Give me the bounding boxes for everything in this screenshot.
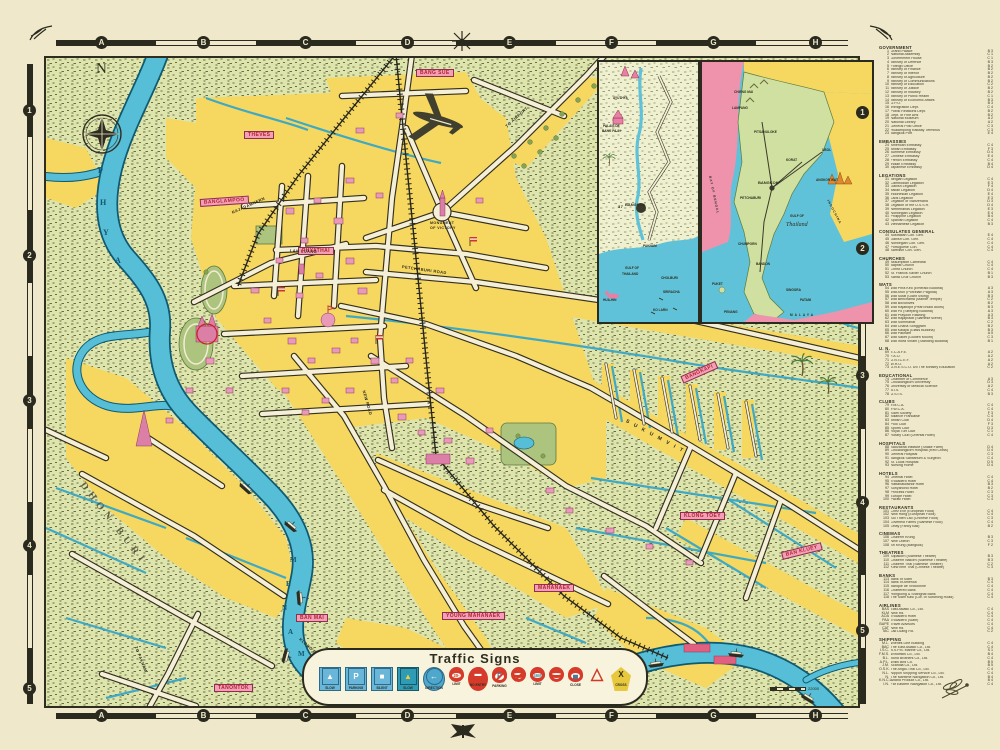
legend-index: GOVERNMENT 1 Grand Palace B 3 2 National… <box>879 42 993 687</box>
inset-route-map: AYUTHYAPALAIS DEBANG PA-INBANGKOKPAKNAMG… <box>597 60 700 324</box>
legend-entry-number: 87 <box>879 434 889 438</box>
traffic-sign: ▲ SLOW <box>319 667 341 691</box>
inset-label: UBOL <box>822 148 831 152</box>
legend-section: CLUBS 79 Y.M.C.A. C 4 80 Y.W.C.A. C 4 <box>879 399 993 438</box>
legend-entry-title: Bangkok Port <box>891 132 987 136</box>
legend-entry: 112 Kiew Imm Thai (Chinese Theatre) C 3 <box>879 566 993 570</box>
map-label: KLONG TOEY <box>680 512 725 520</box>
legend-entry-gridref: E 4 <box>988 132 993 136</box>
traffic-sign-icon: ▄ <box>568 670 583 682</box>
legend-section-items: 79 Y.M.C.A. C 4 80 Y.W.C.A. C 4 81 <box>879 404 993 438</box>
legend-section-items: 101 Chez Eve (European Food) C 4 102 New… <box>879 510 993 529</box>
legend-entry: 87 Rotary Club (Oriental Hotel) C 4 <box>879 434 993 438</box>
legend-entry-gridref: D 4 <box>987 464 993 468</box>
scale-bar-icon <box>770 687 806 691</box>
grid-letter: D <box>401 36 414 49</box>
legend-section-items: 49 Assumption Cathedral C 4 50 Baptist C… <box>879 261 993 280</box>
map-label: THEVES <box>244 131 274 139</box>
inset-label: PATANI <box>800 298 811 302</box>
map-label: BANG SUE <box>416 69 454 77</box>
legend-section-items: 1 Grand Palace B 3 2 National Assembly C… <box>879 50 993 137</box>
legend-entry-number: 100 <box>879 498 889 502</box>
map-label: BAN MAI <box>296 614 328 622</box>
ornament-dragonfly-bottom-right-icon <box>936 678 972 704</box>
legend-entry-gridref: B 3 <box>988 223 993 227</box>
map-label: A <box>115 256 121 265</box>
map-label: H <box>100 198 106 207</box>
legend-entry-title: Swedish Con. Gen. <box>891 249 987 253</box>
legend-section: U. N. 69 E.C.A.F.E. A 2 70 F.A.O. A 2 <box>879 346 993 370</box>
legend-section: CONSULATES GENERAL 44 Australian Con. Ge… <box>879 229 993 253</box>
inset-label: SRIRACHA <box>663 290 680 294</box>
scale-text: 22000 <box>808 686 819 691</box>
grid-letter: B <box>197 36 210 49</box>
legend-entry-title: Kiew Imm Thai (Chinese Theatre) <box>891 566 987 570</box>
inset-label: PITSANULOKE <box>754 130 777 134</box>
inset-label: GULF OF <box>790 214 804 218</box>
legend-entry-number: 48 <box>879 249 889 253</box>
grid-number: 2 <box>856 242 869 255</box>
traffic-sign-label: CROSS <box>615 683 626 687</box>
legend-section-items: BAS East Asiatic Co., Ltd. C 4 KLM New R… <box>879 608 993 634</box>
legend-entry-gridref: B 1 <box>988 340 993 344</box>
traffic-sign-label: PARKING <box>349 686 363 690</box>
inset-label: PUKET <box>712 282 723 286</box>
legend-section: BANKS 113 Bank of Siam B 3 114 Bank of A… <box>879 573 993 601</box>
compass-rose-icon <box>83 115 121 153</box>
grid-number: 2 <box>23 249 36 262</box>
traffic-sign: ▬ NO ENTRY <box>468 667 488 691</box>
legend-section-items: 69 E.C.A.F.E. A 2 70 F.A.O. A 2 71 <box>879 351 993 370</box>
legend-entry-gridref: D 4 <box>987 166 993 170</box>
map-label: M <box>290 556 297 564</box>
map-label: TANONTOK <box>214 684 253 692</box>
traffic-sign-label: LIMIT <box>533 682 541 686</box>
legend-entry-number: 23 <box>879 132 889 136</box>
traffic-sign: X CROSS <box>611 667 631 691</box>
legend-entry-title: Lak Luang Rd. <box>891 630 987 634</box>
legend-entry-title: Wat Indra Viharn (Standing Buddha) <box>891 340 987 344</box>
legend-entry: 53 Santa Cruz Church B 3 <box>879 276 993 280</box>
legend-entry: 100 Pacific Hotel C 4 <box>879 498 993 502</box>
grid-letter: B <box>197 709 210 722</box>
legend-section-items: 106 Chalerm Krung B 3 107 New Odeon C 3 … <box>879 536 993 547</box>
grid-number: 4 <box>23 539 36 552</box>
legend-entry: 23 Bangkok Port E 4 <box>879 132 993 136</box>
legend-entry-gridref: C 4 <box>987 683 993 687</box>
inset-thailand-drawing <box>702 62 872 322</box>
traffic-sign: ▄ CLOSE <box>568 667 583 682</box>
legend-entry-gridref: C 4 <box>987 498 993 502</box>
legend-entry: TAC Lak Luang Rd. C 2 <box>879 630 993 634</box>
legend-entry-gridref: F 2 <box>988 544 993 548</box>
map-frame: N BANG SUETHEVESBANGLAMPOOPHYATHAIBANGKA… <box>44 56 860 708</box>
border-ruler-bottom <box>56 713 848 719</box>
legend-entry-number: 78 <box>879 393 889 397</box>
grid-letter: D <box>401 709 414 722</box>
legend-entry-gridref: C 3 <box>987 566 993 570</box>
grid-letter: H <box>809 709 822 722</box>
legend-entry-number: 118 <box>879 596 889 600</box>
traffic-sign: 20- LIMIT <box>449 667 464 682</box>
legend-entry-number: 73 <box>879 366 889 370</box>
inset-label: MALAYA <box>790 313 815 317</box>
legend-entry: 93 Nursing Home D 4 <box>879 464 993 468</box>
grid-number: 5 <box>856 624 869 637</box>
legend-entry-number: 30 <box>879 166 889 170</box>
grid-letter: E <box>503 709 516 722</box>
map-label: A <box>288 628 293 636</box>
legend-section-items: 109 Silpakorn (Siamese Theatre) B 3 110 … <box>879 555 993 570</box>
legend-entry-number: I.N. <box>879 683 889 687</box>
map-label: YOUNG MAHANAEK <box>442 612 505 620</box>
legend-entry: 68 Wat Indra Viharn (Standing Buddha) B … <box>879 340 993 344</box>
legend-entry: 108 Sri Krung (Bangkok) F 2 <box>879 544 993 548</box>
traffic-sign-label: DIRECTION <box>425 686 443 690</box>
map-poster: ABCDEFGH ABCDEFGH 12345 12345 <box>0 0 1000 750</box>
map-label: Y <box>103 228 109 237</box>
traffic-sign: P PARKING <box>345 667 367 691</box>
inset-label: SINGORA <box>786 288 801 292</box>
legend-entry-number: 53 <box>879 276 889 280</box>
legend-entry: 78 U.S.I.S. B 3 <box>879 393 993 397</box>
inset-label: BANGKOK <box>758 180 779 185</box>
traffic-sign: 46M LIMIT <box>530 667 545 682</box>
traffic-sign-label: CLOSE <box>570 683 581 687</box>
legend-section-items: 88 Saovabha Institute (Snake Farm) D 4 8… <box>879 446 993 469</box>
traffic-sign: P PARKING <box>492 667 507 682</box>
traffic-sign-label: LIMIT <box>452 682 460 686</box>
inset-thailand-map: CHIENG MAILAMPANGPITSANULOKEUBOLKORATBAN… <box>700 60 874 324</box>
ornament-sprout-top-left-icon <box>28 24 54 42</box>
legend-entry: 43 Vietnamese Legation B 3 <box>879 223 993 227</box>
legend-section: CHURCHES 49 Assumption Cathedral C 4 50 … <box>879 256 993 280</box>
inset-label: PALAIS DE <box>603 124 620 128</box>
traffic-sign: ← DIRECTION <box>423 667 445 691</box>
traffic-sign-icon: 46M <box>530 670 545 681</box>
legend-entry-gridref: B 3 <box>988 393 993 397</box>
map-label: N <box>282 604 287 612</box>
inset-label: THAILAND <box>622 272 638 276</box>
grid-number: 5 <box>23 682 36 695</box>
legend-entry-number: 68 <box>879 340 889 344</box>
grid-letter: A <box>95 36 108 49</box>
legend-entry-title: Rotary Club (Oriental Hotel) <box>891 434 987 438</box>
grid-number: 3 <box>23 394 36 407</box>
inset-label: HUA-HIN <box>603 298 616 302</box>
inset-label: ANGKOR WAT <box>816 178 838 182</box>
compass-north-label: N <box>96 61 107 78</box>
traffic-sign-icon: ▬ <box>471 667 486 682</box>
legend-section-items: 44 Australian Con. Gen. E 4 45 Danish Co… <box>879 234 993 253</box>
legend-entry-title: Vietnamese Legation <box>891 223 987 227</box>
traffic-signs-row: ▲ SLOW P PARKING ■ SILENT ▲ <box>304 667 646 691</box>
grid-letter: G <box>707 36 720 49</box>
inset-route-drawing <box>599 62 698 322</box>
legend-section: HOSPITALS 88 Saovabha Institute (Snake F… <box>879 441 993 469</box>
legend-section-items: 54 Wat Phra Keo (Emerald Buddha) A 3 55 … <box>879 287 993 343</box>
legend-entry-gridref: C 4 <box>987 596 993 600</box>
legend-entry-gridref: B 2 <box>988 525 993 529</box>
grid-letter: F <box>605 709 618 722</box>
grid-letter: F <box>605 36 618 49</box>
legend-entry-title: Lefay (Fancy Ball) <box>891 525 987 529</box>
traffic-sign-icon <box>511 670 526 678</box>
legend-entry-gridref: C 4 <box>987 434 993 438</box>
map-label: OF VICTORY <box>430 226 456 230</box>
legend-section-items: 24 American Embassy C 4 25 British Embas… <box>879 144 993 170</box>
inset-label: BANDON <box>756 262 770 266</box>
legend-section: EMBASSIES 24 American Embassy C 4 25 Bri… <box>879 139 993 170</box>
traffic-sign-icon: △ <box>590 667 605 682</box>
inset-label: Thailand <box>786 222 808 228</box>
grid-letter: C <box>299 709 312 722</box>
inset-label: CHIENG MAI <box>734 90 753 94</box>
inset-label: PETCHABURI <box>740 196 761 200</box>
legend-section: THEATRES 109 Silpakorn (Siamese Theatre)… <box>879 550 993 570</box>
inset-label: KO LARN <box>653 308 668 312</box>
legend-entry-number: 112 <box>879 566 889 570</box>
legend-section-items: 31 Belgian Legation C 4 32 Cambodian Leg… <box>879 178 993 227</box>
scale-bar: 22000 <box>770 686 819 691</box>
inset-label: PENANG <box>724 310 738 314</box>
traffic-sign <box>549 667 564 682</box>
legend-section: LEGATIONS 31 Belgian Legation C 4 32 Cam… <box>879 173 993 227</box>
traffic-sign-icon: X <box>614 667 629 682</box>
traffic-sign-icon: ← <box>426 668 443 685</box>
legend-entry-number: 43 <box>879 223 889 227</box>
legend-entry-title: Pacific Hotel <box>891 498 987 502</box>
legend-entry-title: U.S.I.S. <box>891 393 987 397</box>
traffic-sign <box>511 667 526 682</box>
legend-entry-title: The Siam Kasi (Cor. of Suriwong Road) <box>891 596 987 600</box>
legend-section-items: 94 Oriental Hotel C 4 95 Trocadero Hotel… <box>879 476 993 502</box>
traffic-sign-icon: P <box>348 668 365 685</box>
inset-label: BANGKOK <box>625 202 646 207</box>
grid-letter: C <box>299 36 312 49</box>
inset-label: AYUTHYA <box>613 96 628 100</box>
legend-entry-gridref: C 4 <box>987 249 993 253</box>
legend-entry: 73 U.N.E.S.C.O. c/o The Ministry Educati… <box>879 366 993 370</box>
traffic-sign-label: SLOW <box>325 686 335 690</box>
legend-entry: 118 The Siam Kasi (Cor. of Suriwong Road… <box>879 596 993 600</box>
border-ruler-left <box>27 64 33 704</box>
legend-section-items: 113 Bank of Siam B 3 114 Bank of America… <box>879 578 993 601</box>
legend-entry-gridref: C 2 <box>987 366 993 370</box>
traffic-sign-icon <box>549 670 564 678</box>
grid-letter: A <box>95 709 108 722</box>
legend-entry-number: 93 <box>879 464 889 468</box>
inset-label: GULF OF <box>625 266 639 270</box>
map-label: P <box>98 166 103 175</box>
traffic-sign-label: SLOW <box>403 686 413 690</box>
legend-entry-number: 105 <box>879 525 889 529</box>
traffic-sign-label: PARKING <box>492 684 506 688</box>
traffic-sign: ▲ SLOW <box>397 667 419 691</box>
inset-label: CHUMPORN <box>738 242 757 246</box>
map-label: 37 <box>618 204 623 209</box>
legend-entry-title: Sri Krung (Bangkok) <box>891 544 987 548</box>
grid-number: 4 <box>856 496 869 509</box>
traffic-signs-title: Traffic Signs <box>304 651 646 666</box>
legend-entry-title: Santa Cruz Church <box>891 276 987 280</box>
legend-section: GOVERNMENT 1 Grand Palace B 3 2 National… <box>879 45 993 137</box>
inset-label: KORAT <box>786 158 797 162</box>
inset-label: BANG PA-IN <box>602 129 621 133</box>
traffic-sign-icon: ▲ <box>400 668 417 685</box>
legend-section: WATS 54 Wat Phra Keo (Emerald Buddha) A … <box>879 282 993 343</box>
legend-section: CINEMAS 106 Chalerm Krung B 3 107 New Od… <box>879 531 993 547</box>
traffic-sign-label: SILENT <box>376 686 387 690</box>
grid-letter: E <box>503 36 516 49</box>
traffic-signs-legend: Traffic Signs ▲ SLOW P PARKING ■ <box>302 648 648 706</box>
traffic-sign-icon: P <box>492 670 507 683</box>
legend-entry-title: Nursing Home <box>891 464 987 468</box>
grid-letter: H <box>809 36 822 49</box>
map-label: MAHANAEK <box>534 584 574 592</box>
legend-section: AIRLINES BAS East Asiatic Co., Ltd. C 4 … <box>879 603 993 634</box>
traffic-sign-icon: ■ <box>374 668 391 685</box>
traffic-sign: ■ SILENT <box>371 667 393 691</box>
traffic-sign: △ <box>587 667 607 691</box>
legend-entry: 105 Lefay (Fancy Ball) B 2 <box>879 525 993 529</box>
legend-entry-title: U.N.E.S.C.O. c/o The Ministry Education <box>891 366 987 370</box>
grid-letter: G <box>707 709 720 722</box>
grid-number: 3 <box>856 369 869 382</box>
legend-entry: 48 Swedish Con. Gen. C 4 <box>879 249 993 253</box>
grid-number: 1 <box>856 106 869 119</box>
legend-section: HOTELS 94 Oriental Hotel C 4 95 Trocader… <box>879 471 993 502</box>
legend-entry-number: 108 <box>879 544 889 548</box>
inset-label: LAMPANG <box>732 106 748 110</box>
traffic-sign-label: NO ENTRY <box>470 683 486 687</box>
legend-section-items: 74 Chamber of Commerce A 3 75 Chulalongk… <box>879 378 993 397</box>
legend-entry-gridref: C 2 <box>987 630 993 634</box>
legend-entry: 30 Japanese Embassy D 4 <box>879 166 993 170</box>
map-label: MONUMENT <box>430 221 454 225</box>
inset-label: CHOLBURI <box>661 276 678 280</box>
traffic-sign-icon: ▲ <box>322 668 339 685</box>
map-label: E <box>286 580 291 588</box>
ornament-moth-bottom-center-icon <box>448 722 478 742</box>
legend-section: EDUCATIONAL 74 Chamber of Commerce A 3 7… <box>879 373 993 397</box>
legend-section: RESTAURANTS 101 Chez Eve (European Food)… <box>879 505 993 529</box>
ornament-star-top-center-icon <box>450 30 474 52</box>
map-label: LAN LUANG <box>290 248 317 254</box>
legend-entry-title: Japanese Embassy <box>891 166 987 170</box>
grid-number: 1 <box>23 104 36 117</box>
inset-label: PAKNAM <box>643 244 657 248</box>
ornament-fleur-top-right-icon <box>868 24 894 42</box>
traffic-sign-icon: 20- <box>449 670 464 681</box>
legend-entry-gridref: B 3 <box>988 276 993 280</box>
legend-entry-number: TAC <box>879 630 889 634</box>
